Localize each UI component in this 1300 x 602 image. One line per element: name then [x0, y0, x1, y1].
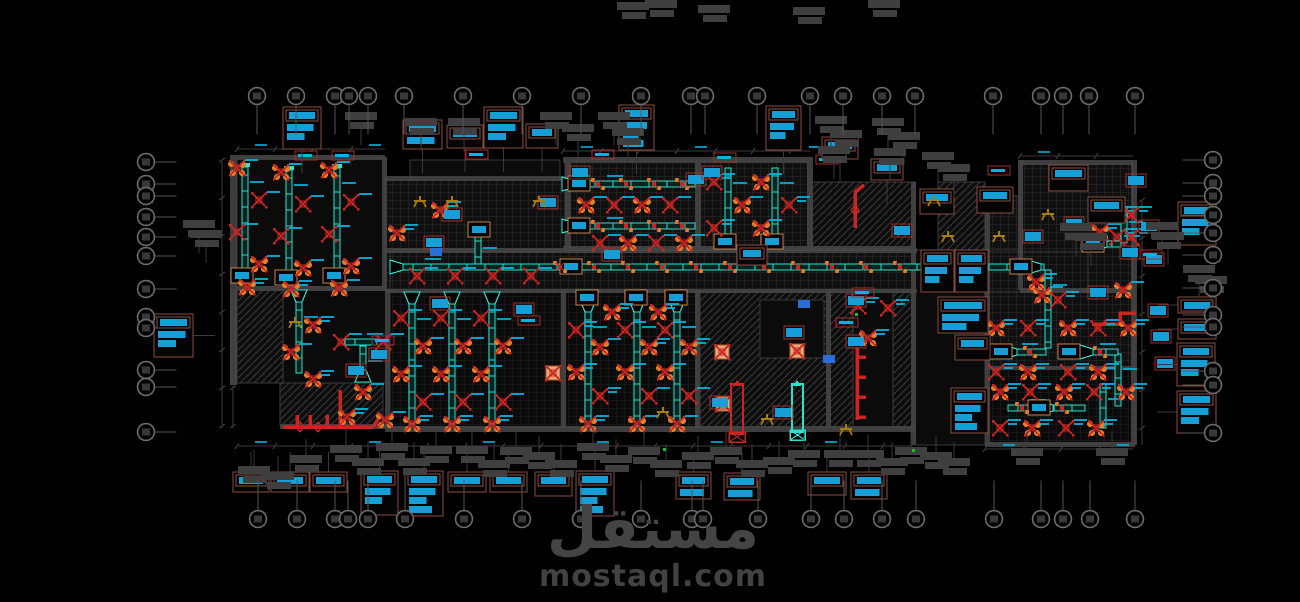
duct-label — [417, 318, 431, 320]
grid-bubble-label — [1209, 212, 1217, 219]
leader-label — [562, 124, 594, 157]
grid-bubble-label — [142, 384, 150, 391]
wall-segment — [385, 289, 917, 293]
dim-text — [695, 146, 707, 148]
room-region — [853, 292, 893, 428]
leader-label — [617, 2, 649, 19]
callout-title — [682, 477, 705, 484]
callout-title — [730, 478, 754, 485]
callout-box — [938, 297, 988, 333]
text-label-cyan — [894, 226, 910, 235]
text-label-cyan — [426, 238, 442, 247]
grid-bubble-label — [293, 516, 301, 523]
callout-title — [877, 164, 897, 171]
grid-bubble — [1033, 88, 1050, 135]
hatched-area — [810, 182, 915, 250]
duct-label — [1129, 221, 1143, 223]
wall-segment — [237, 286, 385, 291]
leader-label — [682, 436, 714, 469]
grid-bubble — [138, 154, 177, 171]
grid-bubble — [138, 424, 177, 441]
grid-bubble — [985, 88, 1002, 135]
callout-title — [1183, 348, 1209, 355]
wall-segment — [1131, 160, 1137, 445]
grid-bubble-label — [1059, 93, 1067, 100]
dim-text — [255, 441, 267, 443]
callout-title — [532, 129, 552, 136]
grid-bubble — [986, 481, 1003, 528]
duct-label — [342, 182, 356, 184]
text-label-cyan — [688, 175, 704, 184]
grid-bubble — [802, 88, 819, 135]
callout-title — [857, 477, 881, 484]
callout-text-line — [770, 123, 794, 130]
callout-text-line — [955, 405, 981, 412]
grid-bubble — [138, 188, 177, 205]
fan-coil-unit-label — [765, 238, 779, 245]
diffuser-square-peach — [789, 343, 806, 360]
duct-label — [457, 318, 471, 320]
duct-run-vertical — [1045, 270, 1051, 348]
callout-box — [1088, 197, 1125, 223]
callout-text-line — [925, 276, 940, 283]
dim-text — [597, 441, 609, 443]
wall-segment — [911, 182, 916, 445]
grid-bubble — [1183, 247, 1222, 264]
green-marker — [663, 448, 666, 451]
grid-bubble — [138, 362, 177, 379]
grid-bubble-label — [401, 516, 409, 523]
duct-label — [1053, 284, 1067, 286]
duct-label — [497, 318, 511, 320]
leader-label — [628, 431, 660, 464]
grid-bubble-label — [1209, 430, 1217, 437]
text-label-cyan — [1157, 359, 1173, 368]
fan-coil-unit-label — [1014, 263, 1028, 270]
text-label-cyan — [1153, 332, 1169, 341]
duct-run-vertical — [286, 170, 292, 270]
dim-text — [825, 441, 837, 443]
callout-text-line — [1181, 408, 1208, 415]
leader-label — [330, 429, 362, 462]
grid-bubble — [1055, 88, 1072, 135]
callout-text-line — [287, 124, 313, 131]
fan-coil-unit-label — [572, 222, 586, 229]
text-label-cyan — [432, 299, 448, 308]
grid-bubble-label — [1209, 312, 1217, 319]
callout-box — [808, 452, 846, 495]
callout-title — [160, 319, 187, 326]
fan-coil-unit-label — [1062, 348, 1076, 355]
grid-bubble — [749, 88, 766, 135]
text-label-cyan — [444, 210, 460, 219]
leader-label — [456, 430, 488, 463]
grid-bubble-label — [518, 93, 526, 100]
grid-bubble — [874, 88, 891, 135]
grid-bubble-label — [1209, 157, 1217, 164]
duct-label — [1022, 343, 1038, 345]
callout-text-line — [942, 323, 966, 330]
duct-run-vertical — [296, 302, 302, 373]
fan-coil-unit-label — [572, 180, 586, 187]
grid-bubble-label — [459, 93, 467, 100]
grid-bubble-label — [577, 93, 585, 100]
fan-coil-unit-label — [1032, 404, 1046, 411]
duct-run-vertical — [674, 312, 680, 426]
fan-coil-unit-label — [718, 238, 732, 245]
wall-segment — [563, 157, 813, 163]
callout-title — [1055, 170, 1082, 177]
diffuser-square-peach — [714, 344, 731, 361]
grid-bubble-label — [142, 181, 150, 188]
callout-text-line — [409, 506, 432, 513]
callout-text-line — [959, 276, 974, 283]
grid-bubble-label — [142, 234, 150, 241]
callout-text-line — [955, 414, 972, 421]
duct-label — [682, 326, 696, 328]
dim-text — [369, 144, 381, 146]
text-label-cyan — [704, 168, 720, 177]
wall-segment — [385, 176, 567, 181]
grid-bubble-label — [577, 516, 585, 523]
text-label-cyan — [1150, 306, 1166, 315]
callout-box — [154, 314, 215, 357]
leader-label — [190, 230, 222, 263]
grid-bubble-label — [344, 516, 352, 523]
grid-bubble-label — [637, 93, 645, 100]
grid-bubble-label — [1209, 324, 1217, 331]
wall-segment — [561, 290, 566, 428]
callout-text-line — [409, 497, 426, 504]
fan-coil-unit-label — [994, 348, 1008, 355]
grid-bubble-label — [807, 516, 815, 523]
grid-bubble — [138, 248, 177, 265]
grid-bubble — [1055, 481, 1072, 528]
text-label-cyan — [516, 305, 532, 314]
tag-label — [988, 166, 1010, 175]
callout-text-line — [158, 340, 176, 347]
callout-text-line — [955, 423, 977, 430]
dim-text — [483, 441, 495, 443]
callout-title — [541, 477, 566, 484]
grid-bubble-label — [1037, 516, 1045, 523]
callout-text-line — [158, 331, 185, 338]
grid-bubble-label — [142, 429, 150, 436]
callout-title — [1183, 396, 1210, 403]
callout-text-line — [1182, 228, 1199, 235]
callout-frame — [1088, 197, 1125, 223]
dim-text — [581, 146, 593, 148]
callout-box — [977, 187, 1013, 213]
duct-label — [607, 217, 623, 219]
fan-coil-unit-label — [580, 294, 594, 301]
fan-coil-unit-label — [629, 294, 643, 301]
wall-segment — [695, 290, 700, 428]
callout-title — [1094, 202, 1119, 209]
grid-bubble-label — [331, 93, 339, 100]
text-label-cyan — [1090, 288, 1106, 297]
grid-bubble-label — [253, 93, 261, 100]
grid-bubble — [908, 481, 925, 528]
callout-frame — [1049, 165, 1088, 191]
callout-title — [316, 477, 341, 484]
grid-bubble-label — [1209, 382, 1217, 389]
duct-run-horizontal — [585, 223, 695, 229]
green-marker — [912, 449, 915, 452]
grid-bubble-label — [1209, 193, 1217, 200]
callout-text-line — [1181, 360, 1207, 367]
duct-label — [642, 326, 656, 328]
grid-bubble — [1183, 152, 1222, 169]
duct-run-vertical — [334, 168, 340, 268]
callout-title — [289, 112, 315, 119]
grid-bubble-label — [1059, 516, 1067, 523]
hatched-area — [237, 290, 283, 383]
callout-title — [961, 255, 982, 262]
grid-bubble-label — [1131, 516, 1139, 523]
callout-title — [582, 476, 608, 483]
text-label-cyan — [786, 328, 802, 337]
fan-coil-unit-label — [235, 272, 249, 279]
grid-bubble-label — [1209, 180, 1217, 187]
grid-bubble-label — [1209, 230, 1217, 237]
grid-bubble-label — [990, 516, 998, 523]
text-label-cyan — [1128, 176, 1144, 185]
fan-coil-unit-label — [327, 272, 341, 279]
callout-frame — [977, 187, 1013, 213]
duct-run-vertical — [242, 167, 248, 268]
dim-text — [255, 144, 267, 146]
grid-bubble-label — [345, 93, 353, 100]
callout-text-line — [728, 490, 753, 497]
callout-title — [367, 476, 392, 483]
cad-drawing-canvas: مستقل mostaql.com — [0, 0, 1300, 602]
grid-bubble-label — [142, 325, 150, 332]
grid-bubble-label — [460, 516, 468, 523]
grid-bubble — [907, 88, 924, 135]
grid-bubble — [1033, 481, 1050, 528]
grid-bubble-label — [1209, 368, 1217, 375]
callout-title — [927, 255, 948, 262]
leader-label — [793, 7, 825, 24]
callout-title — [961, 340, 984, 347]
callout-text-line — [942, 314, 979, 321]
duct-run-horizontal — [585, 181, 695, 187]
grid-bubble-label — [701, 93, 709, 100]
grid-bubble-label — [912, 516, 920, 523]
grid-bubble-label — [364, 516, 372, 523]
leader-label — [645, 0, 677, 17]
duct-label — [1100, 343, 1116, 345]
callout-title — [490, 112, 517, 119]
grid-bubble-label — [1086, 516, 1094, 523]
callout-box — [921, 250, 954, 292]
grid-bubble-label — [911, 93, 919, 100]
grid-bubble-label — [637, 516, 645, 523]
grid-bubble — [138, 281, 177, 298]
text-label-cyan — [775, 408, 791, 417]
callout-text-line — [409, 488, 435, 495]
grid-bubble-label — [142, 367, 150, 374]
callout-box — [955, 335, 990, 360]
callout-text-line — [488, 133, 506, 140]
diffuser-square-peach — [545, 365, 562, 382]
grid-bubble-label — [989, 93, 997, 100]
grid-bubble-label — [518, 516, 526, 523]
grid-bubble — [1081, 88, 1098, 135]
text-label-cyan — [848, 337, 864, 346]
grid-bubble — [697, 88, 714, 135]
grid-bubble-label — [1131, 93, 1139, 100]
grid-bubble-label — [142, 286, 150, 293]
callout-text-line — [580, 488, 606, 495]
duct-run-vertical — [409, 304, 415, 424]
duct-label — [593, 326, 607, 328]
text-label-cyan — [712, 398, 728, 407]
callout-text-line — [1181, 417, 1199, 424]
grid-bubble-label — [142, 214, 150, 221]
grid-bubble — [249, 88, 266, 135]
duct-label — [483, 247, 497, 249]
grid-bubble-label — [1085, 93, 1093, 100]
text-label-blue — [823, 355, 835, 363]
callout-box — [951, 388, 988, 433]
text-label-cyan — [371, 350, 387, 359]
grid-bubble — [633, 481, 650, 528]
duct-run-vertical — [475, 233, 481, 265]
duct-run-vertical — [449, 304, 455, 424]
wall-segment — [807, 163, 813, 248]
leader-label — [868, 0, 900, 17]
duct-label — [607, 175, 623, 177]
callout-frame — [955, 335, 990, 360]
wall-segment — [385, 426, 915, 432]
grid-bubble-label — [839, 93, 847, 100]
callout-title — [957, 393, 982, 400]
text-label-cyan — [604, 250, 620, 259]
grid-bubble-label — [687, 93, 695, 100]
callout-title — [983, 192, 1007, 199]
callout-title — [1184, 302, 1210, 309]
text-label-cyan — [572, 168, 588, 177]
grid-bubble-label — [754, 516, 762, 523]
fan-coil-unit-label — [472, 226, 486, 233]
callout-text-line — [1182, 219, 1208, 226]
callout-text-line — [580, 497, 597, 504]
leader-label — [345, 112, 377, 145]
callout-text-line — [365, 488, 391, 495]
grid-bubble-label — [142, 253, 150, 260]
grid-bubble-label — [878, 93, 886, 100]
grid-bubble — [1127, 88, 1144, 135]
dim-text — [369, 441, 381, 443]
grid-bubble-label — [1037, 93, 1045, 100]
grid-bubble — [1082, 481, 1099, 528]
grid-bubble-label — [142, 193, 150, 200]
grid-bubble-label — [1209, 285, 1217, 292]
text-label-blue — [430, 248, 442, 256]
leader-label — [612, 128, 644, 161]
grid-bubble — [138, 229, 177, 246]
duct-run-vertical — [634, 312, 640, 426]
grid-bubble-label — [699, 516, 707, 523]
callout-title — [411, 476, 437, 483]
grid-bubble-label — [292, 93, 300, 100]
callout-box — [955, 250, 988, 292]
callout-text-line — [925, 267, 947, 274]
fan-coil-unit-label — [279, 274, 293, 281]
ceiling-grid — [390, 292, 563, 428]
grid-bubble — [138, 209, 177, 226]
tag-label — [466, 150, 488, 159]
grid-bubble-label — [331, 516, 339, 523]
text-label-blue — [798, 300, 810, 308]
duct-run-vertical — [489, 304, 495, 424]
grid-bubble — [1127, 481, 1144, 528]
dim-text — [1038, 151, 1050, 153]
text-label-cyan — [1025, 232, 1041, 241]
callout-text-line — [855, 489, 880, 496]
leader-label — [698, 5, 730, 22]
dim-text — [1117, 444, 1129, 446]
dim-text — [1003, 444, 1015, 446]
grid-bubble-label — [1209, 252, 1217, 259]
leader-label — [824, 434, 856, 467]
callout-text-line — [488, 124, 515, 131]
grid-bubble-label — [142, 159, 150, 166]
callout-title — [496, 477, 521, 484]
fan-coil-unit-label — [669, 294, 683, 301]
callout-box — [737, 245, 767, 265]
grid-bubble-label — [806, 93, 814, 100]
grid-bubble — [138, 379, 177, 396]
fan-coil-unit-label — [564, 263, 578, 270]
duct-label — [294, 184, 308, 186]
callout-text-line — [1181, 369, 1198, 376]
grid-bubble-label — [400, 93, 408, 100]
duct-label — [1123, 368, 1137, 370]
leader-label — [818, 146, 850, 179]
leader-label — [290, 439, 322, 472]
duct-label — [733, 182, 747, 184]
leader-label — [938, 442, 970, 475]
text-label-cyan — [348, 366, 364, 375]
callout-title — [772, 111, 795, 118]
callout-title — [944, 302, 982, 309]
green-marker — [855, 313, 858, 316]
callout-box — [1049, 165, 1088, 191]
callout-title — [814, 477, 840, 484]
grid-bubble-label — [254, 516, 262, 523]
grid-bubble-label — [878, 516, 886, 523]
duct-label — [780, 182, 794, 184]
dim-text — [711, 441, 723, 443]
wall-segment — [1020, 160, 1133, 165]
duct-label — [250, 181, 264, 183]
room-region — [237, 157, 385, 288]
text-label-cyan — [1122, 248, 1138, 257]
grid-bubble-label — [840, 516, 848, 523]
grid-bubble-label — [364, 93, 372, 100]
callout-text-line — [959, 267, 981, 274]
duct-label — [425, 258, 441, 260]
callout-title — [743, 250, 761, 257]
hvac-floor-plan-svg — [0, 0, 1300, 602]
grid-bubble-label — [753, 93, 761, 100]
callout-title — [454, 477, 480, 484]
callout-text-line — [770, 132, 786, 139]
leader-label — [710, 431, 742, 464]
